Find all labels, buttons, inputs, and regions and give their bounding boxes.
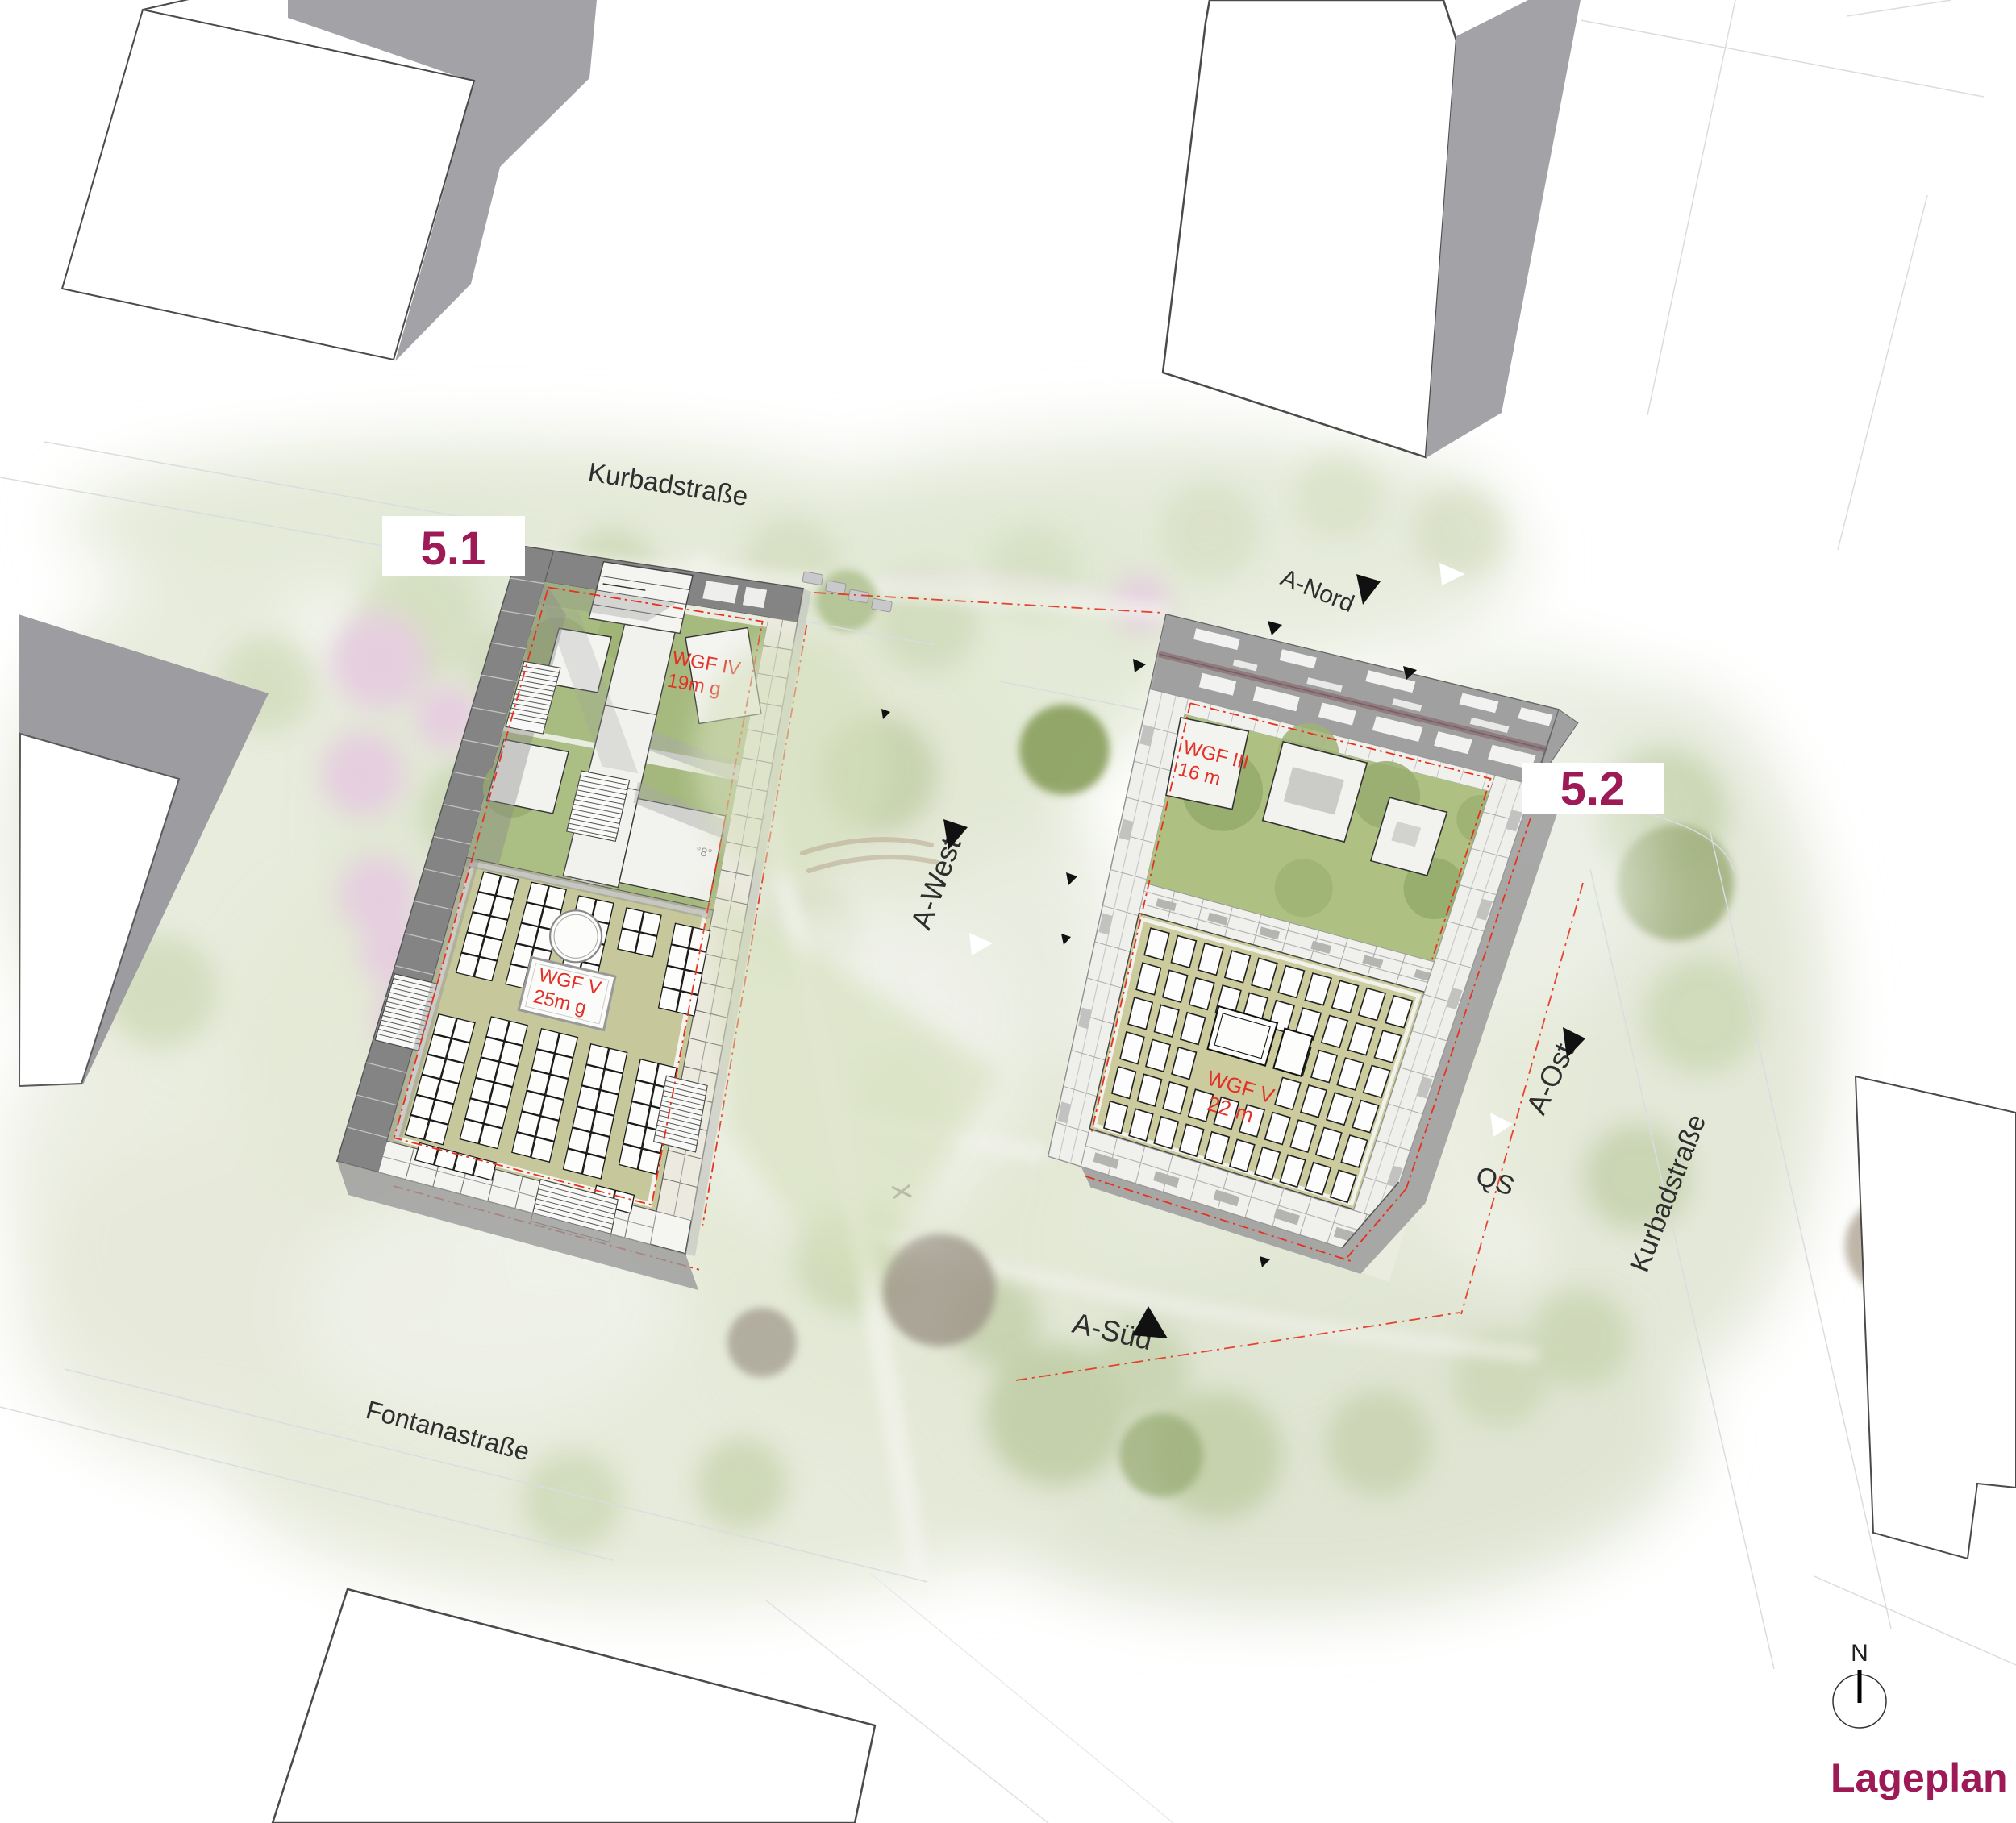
- svg-text:5.1: 5.1: [421, 522, 486, 575]
- svg-text:Lageplan: Lageplan: [1831, 1755, 2007, 1800]
- svg-text:N: N: [1851, 1640, 1868, 1667]
- svg-text:5.2: 5.2: [1560, 763, 1626, 815]
